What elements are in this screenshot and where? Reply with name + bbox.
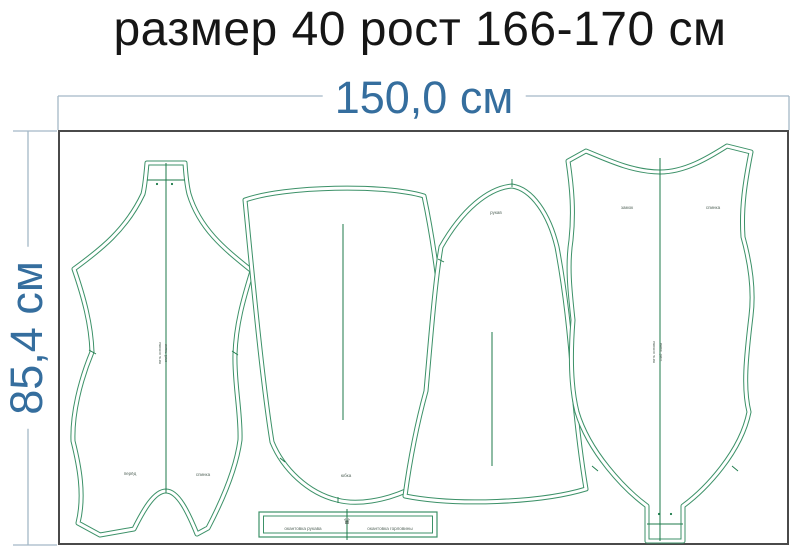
pattern-piece-binding-strip: ♛ окантовка рукава окантовка горловины (259, 509, 437, 540)
strip-label-right: окантовка горловины (367, 526, 412, 531)
brand-crest-icon: ♛ (343, 517, 350, 526)
back-label-right: спинка (706, 205, 721, 210)
width-dimension-label: 150,0 см (323, 72, 526, 124)
svg-text:сгиб ткани: сгиб ткани (659, 343, 663, 361)
svg-text:нить основы: нить основы (158, 342, 162, 364)
pattern-sheet: размер 40 рост 166-170 см (0, 0, 800, 555)
sleeve-label: рукав (490, 210, 502, 215)
strip-label-left: окантовка рукава (284, 526, 322, 531)
svg-text:сгиб ткани: сгиб ткани (164, 344, 168, 362)
svg-text:нить основы: нить основы (652, 341, 656, 363)
skirt-label: юбка (341, 473, 352, 478)
pattern-piece-front: перёд спинка нить основы сгиб ткани (73, 163, 252, 535)
height-dimension-label: 85,4 см (1, 247, 53, 429)
back-label-left: замок (621, 205, 633, 210)
pattern-piece-back: замок спинка нить основы сгиб ткани (568, 146, 752, 541)
front-label-right: спинка (196, 472, 211, 477)
front-label-left: перёд (124, 471, 137, 476)
